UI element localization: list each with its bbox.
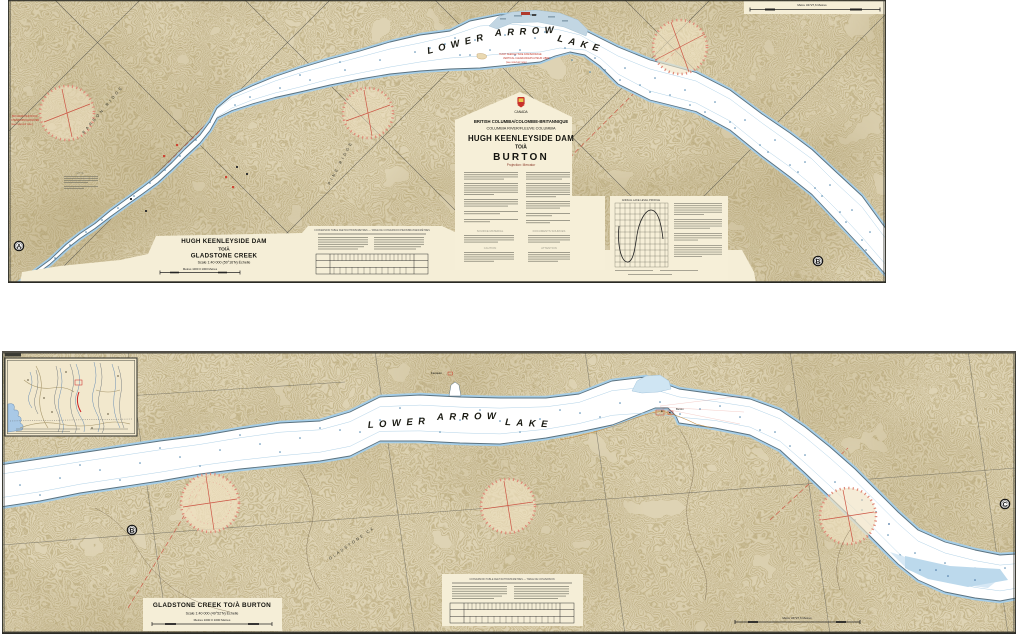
svg-text:Metre 34727,6 Metres: Metre 34727,6 Metres (782, 616, 812, 620)
svg-text:C: C (1003, 502, 1008, 509)
svg-text:NOTE: NOTE (76, 171, 83, 175)
svg-text:CAUTION: CAUTION (484, 246, 497, 250)
svg-text:CANADA: CANADA (514, 110, 528, 114)
svg-text:Scale 1:40 000 (50°16'N) Échel: Scale 1:40 000 (50°16'N) Échelle (198, 260, 251, 265)
svg-text:BROADWATER ROAD: BROADWATER ROAD (12, 115, 38, 118)
svg-text:CONVERSION TABLE FEET/FATHOMS/: CONVERSION TABLE FEET/FATHOMS/METRES — T… (469, 578, 555, 581)
svg-text:SOURCE MATERIAL: SOURCE MATERIAL (477, 229, 504, 233)
svg-text:Projection: Mercator: Projection: Mercator (507, 163, 536, 167)
svg-text:GLADSTONE CREEK TO/À BURTON: GLADSTONE CREEK TO/À BURTON (153, 600, 271, 609)
svg-text:TO/À: TO/À (515, 144, 527, 151)
svg-text:A: A (17, 244, 22, 251)
svg-text:(see note/voir note): (see note/voir note) (11, 123, 33, 126)
svg-text:VERTICAL CLEARANCE/HAUTEUR LIB: VERTICAL CLEARANCE/HAUTEUR LIBRE (503, 57, 550, 60)
svg-text:B: B (816, 259, 821, 266)
svg-text:BRITISH COLUMBIA/COLOMBIE-BRIT: BRITISH COLUMBIA/COLOMBIE-BRITANNIQUE (474, 119, 569, 124)
svg-text:HUGH KEENLEYSIDE DAM: HUGH KEENLEYSIDE DAM (468, 134, 574, 143)
svg-text:Fauquier: Fauquier (431, 371, 442, 375)
svg-text:Metre 34727,6 Metres: Metre 34727,6 Metres (797, 3, 827, 7)
svg-text:COLUMBIA RIVER/FLEUVE COLUMBIA: COLUMBIA RIVER/FLEUVE COLUMBIA (487, 127, 556, 131)
svg-text:B: B (130, 528, 135, 535)
svg-text:Metres 1000 0 1000 Metres: Metres 1000 0 1000 Metres (194, 618, 231, 622)
svg-text:HUGH KEENLEYSIDE DAM/BARRAGE: HUGH KEENLEYSIDE DAM/BARRAGE (499, 53, 542, 56)
svg-text:GLADSTONE CREEK: GLADSTONE CREEK (191, 253, 258, 260)
svg-text:CONVERSION TABLE FEET/FATHOMS/: CONVERSION TABLE FEET/FATHOMS/METRES — T… (314, 229, 430, 232)
svg-text:(see note/voir note): (see note/voir note) (506, 61, 527, 64)
svg-text:HUGH KEENLEYSIDE DAM: HUGH KEENLEYSIDE DAM (181, 238, 266, 245)
svg-text:Metres 1000 0 1000 Metres: Metres 1000 0 1000 Metres (183, 267, 218, 271)
svg-text:CHEMIN BROADWATER: CHEMIN BROADWATER (11, 119, 39, 122)
svg-text:TO/À: TO/À (218, 246, 230, 253)
svg-text:Burton: Burton (676, 407, 684, 411)
svg-text:DOCUMENTS SOURCES: DOCUMENTS SOURCES (533, 229, 566, 233)
svg-text:ATTENTION: ATTENTION (541, 246, 557, 250)
svg-text:ANNUAL LAKE LEVEL PROFILE: ANNUAL LAKE LEVEL PROFILE (622, 198, 661, 202)
svg-text:ARROW: ARROW (436, 411, 502, 423)
svg-text:BURTON: BURTON (493, 152, 549, 163)
svg-text:Scale 1:40 000 (49°52'N) Échel: Scale 1:40 000 (49°52'N) Échelle (186, 611, 239, 616)
